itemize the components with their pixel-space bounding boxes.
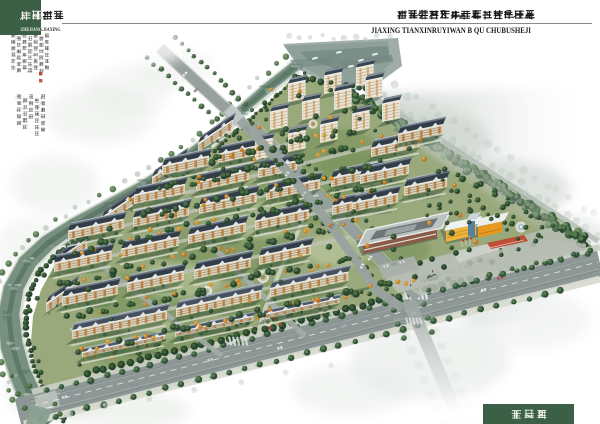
svg-text:JIAXING TIANXINRUYIWAN B QU CH: JIAXING TIANXINRUYIWAN B QU CHUBUSHEJI (371, 26, 531, 35)
